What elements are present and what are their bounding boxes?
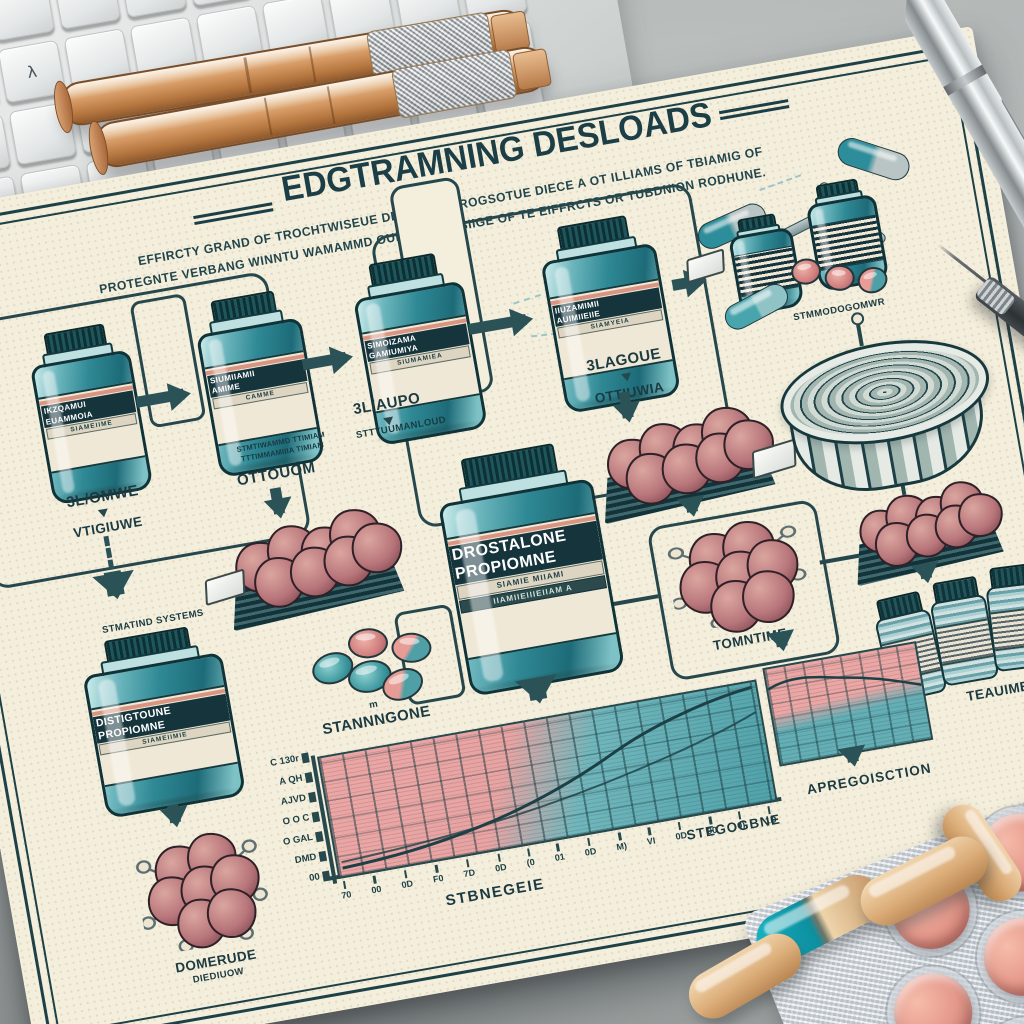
bottle-body: DISTIGTOUNEPROPIOMNE SIAMEIIMIE [82, 651, 246, 819]
vial-label [990, 606, 1024, 652]
x-tick: 0D [399, 869, 414, 890]
pen-ring [943, 64, 988, 96]
y-tick: AJVD [280, 792, 316, 807]
y-tick: A QH [279, 772, 314, 787]
pen-tip [512, 47, 552, 91]
x-tick: 00 [369, 875, 382, 895]
scene: ✓λ EDGTRAMNING DESLOADS EFFIRCTY GRAND O… [0, 0, 1024, 1024]
pen-seam [308, 46, 317, 83]
y-tick: O O C [282, 812, 320, 828]
pen-clip [1000, 93, 1024, 220]
x-tick: 0D [582, 837, 597, 858]
x-tick: (0 [524, 848, 535, 868]
arrow-down-to-small-chart [776, 638, 788, 648]
x-tick: 7D [461, 858, 476, 879]
y-tick: 00 [309, 871, 331, 884]
keyboard-key [53, 0, 121, 30]
blister-tablet [972, 906, 1024, 1008]
connector-line [856, 322, 864, 346]
x-tick: 01 [552, 843, 565, 863]
y-tick: O GAL [282, 831, 323, 847]
arrow-down-to-molecule [167, 804, 181, 824]
arrow-down-small-chart [847, 753, 859, 763]
arrow-down-to-molecule-frame [685, 499, 698, 513]
title-rule [193, 202, 273, 225]
y-tick: C 130r [270, 752, 310, 768]
cluster-capsule [834, 134, 913, 183]
x-tick: 70 [339, 880, 352, 900]
molecule-left [130, 825, 276, 958]
arrow-down-to-chart [528, 682, 548, 701]
keyboard-key [185, 0, 253, 6]
blister-tablet [976, 1012, 1024, 1024]
small-chart-caption: APREGOISCTION [779, 756, 959, 803]
y-tick: DMD [294, 851, 327, 866]
arrow-down-left-column [104, 570, 125, 597]
declining-curve [767, 657, 922, 711]
tablet-pill [347, 627, 389, 660]
title-rule [719, 99, 789, 120]
keyboard-key [119, 0, 187, 18]
cluster-pill [825, 265, 855, 291]
x-tick: 0D [493, 853, 508, 874]
keyboard-key [0, 0, 55, 41]
pen-seam [264, 97, 273, 135]
blister-tablet [882, 962, 984, 1024]
x-tick: F0 [431, 864, 445, 885]
medicine-bottle-left: DISTIGTOUNEPROPIOMNE SIAMEIIMIE [77, 622, 239, 813]
pen-seam [243, 57, 252, 94]
bottle-body: DROSTALONEPROPIOMNE SIAMIE MIIAMI IIAMII… [438, 478, 625, 697]
pen-seam [326, 86, 335, 124]
tablet-pill [391, 633, 431, 663]
arrow-down-to-vials [919, 564, 932, 580]
x-tick: M) [614, 832, 628, 853]
stadium-illustration [772, 326, 999, 504]
keyboard-key [0, 113, 11, 177]
arrow-right-2 [302, 352, 347, 370]
vial-label [936, 618, 994, 666]
